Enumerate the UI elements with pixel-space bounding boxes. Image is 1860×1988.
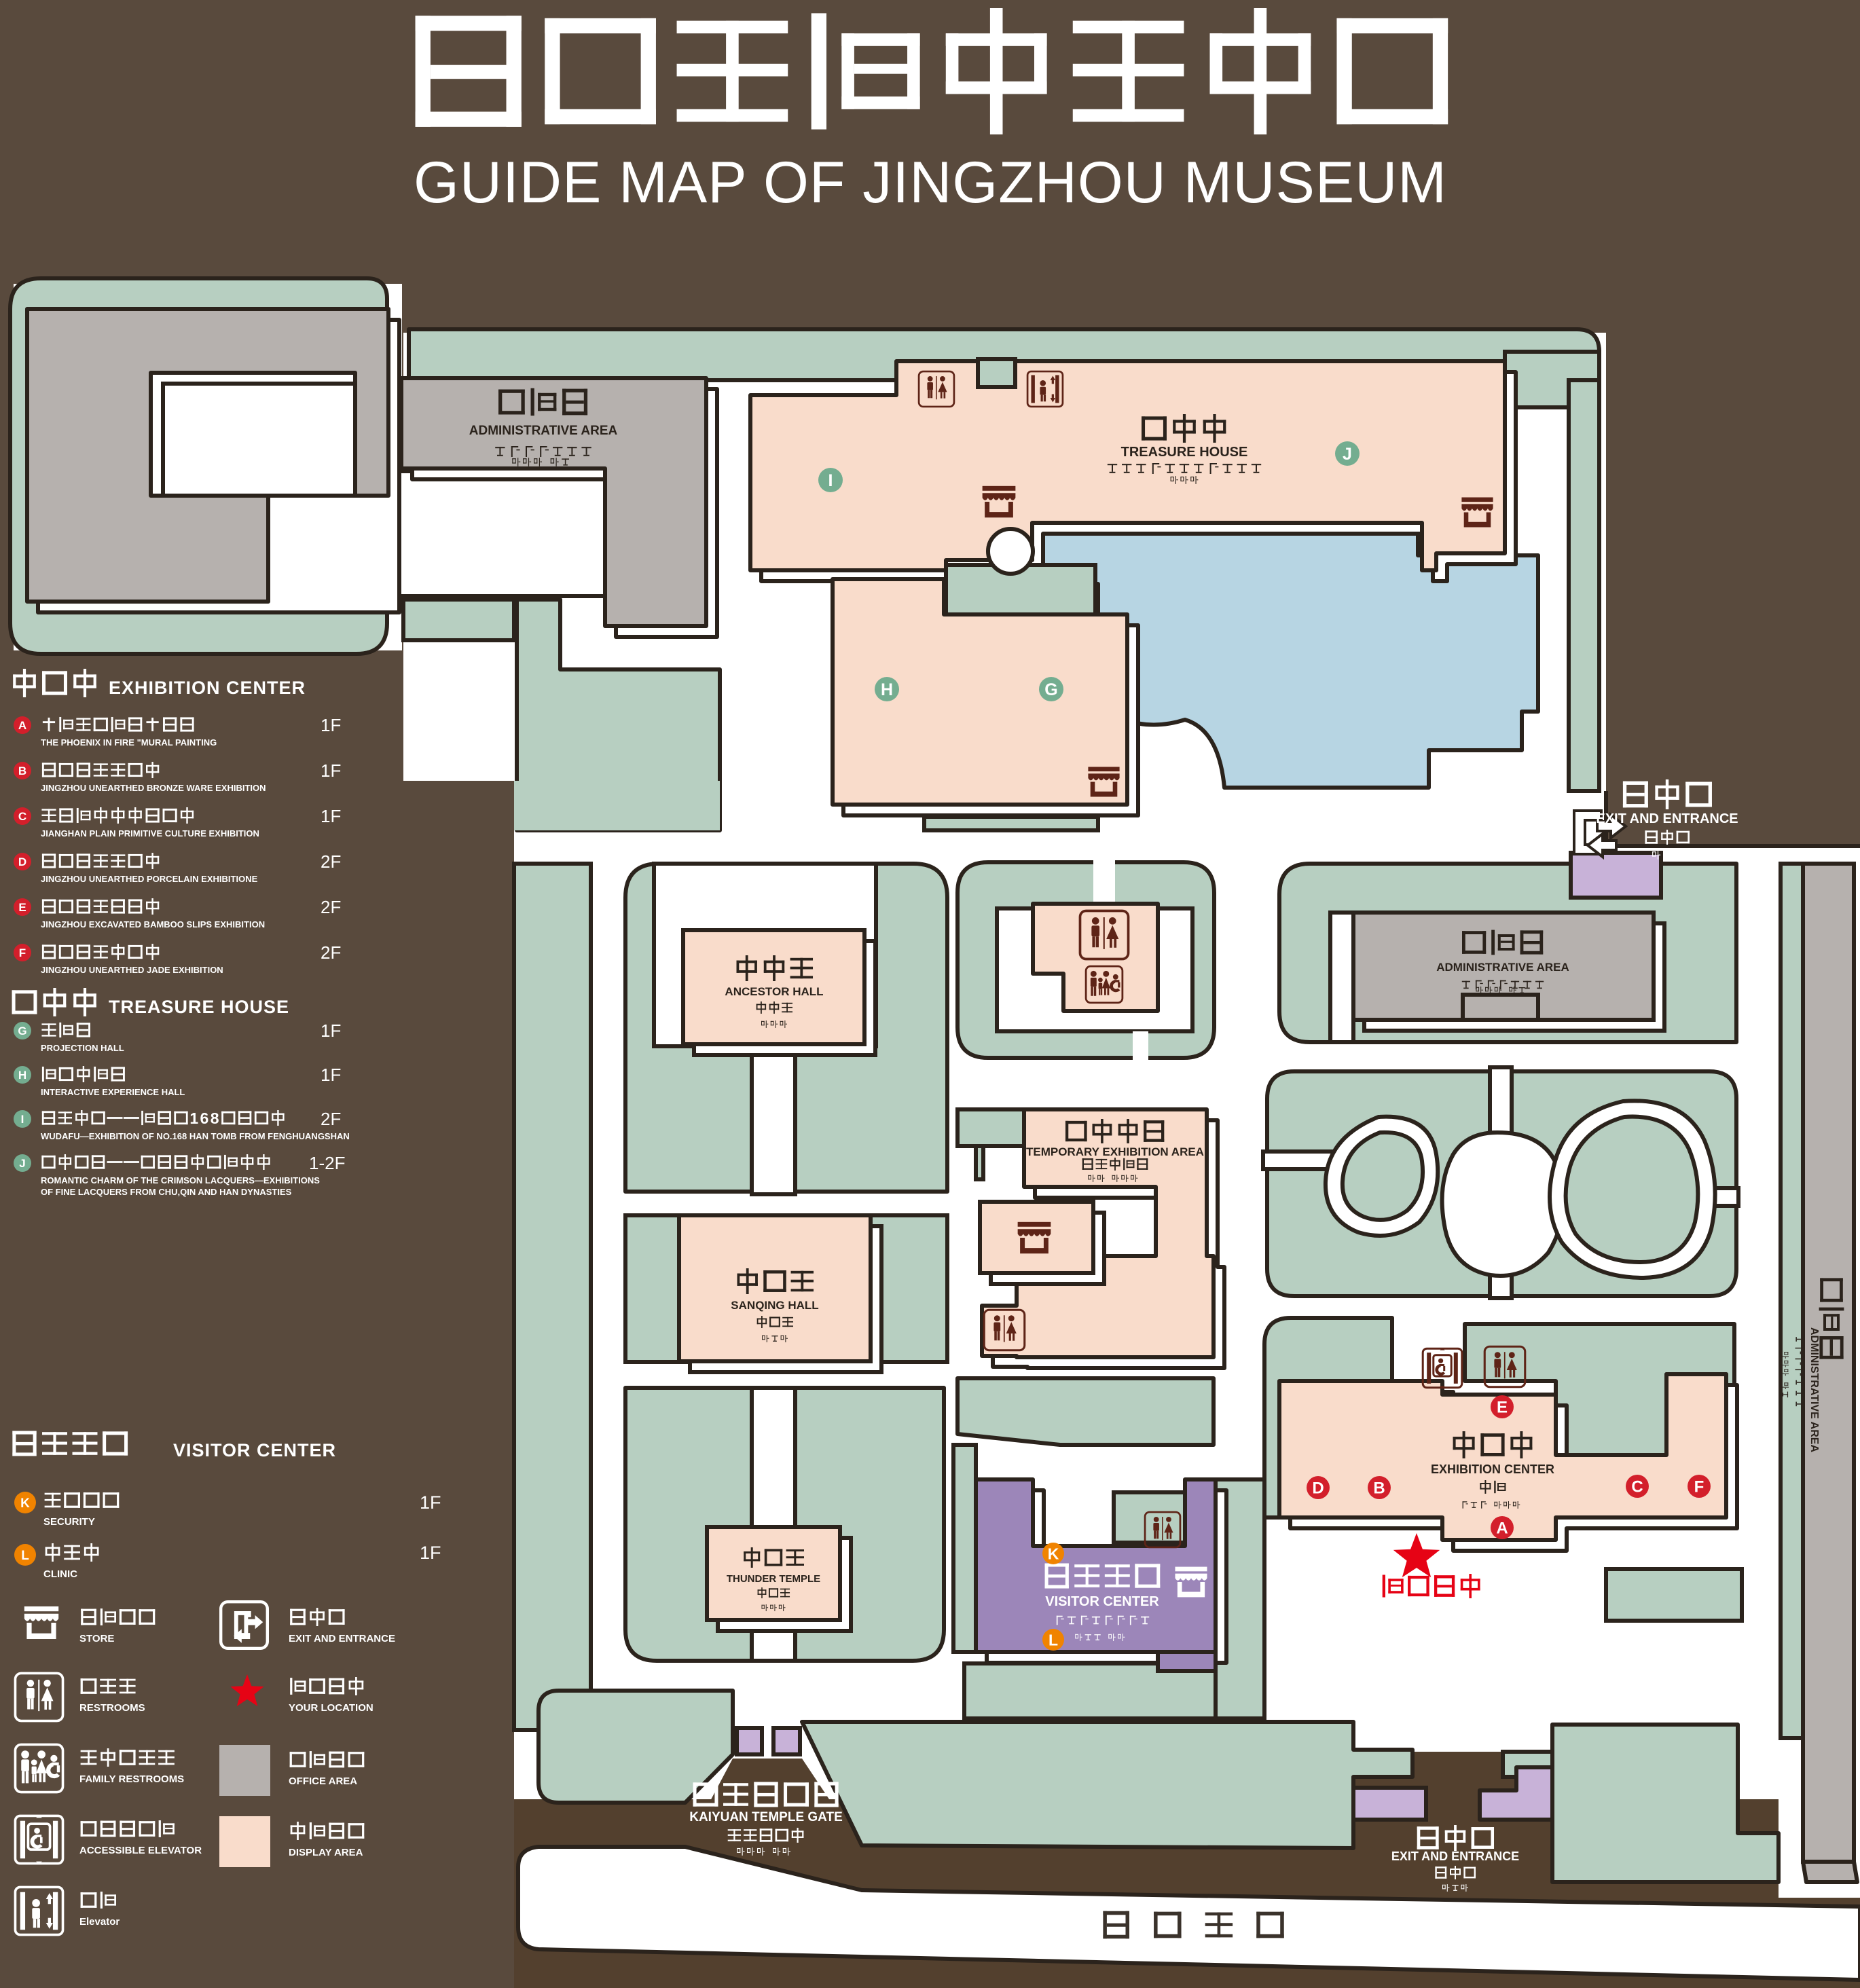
svg-text:TREASURE HOUSE: TREASURE HOUSE [1121, 445, 1248, 460]
svg-text:L: L [1048, 1631, 1058, 1649]
svg-text:DISPLAY AREA: DISPLAY AREA [289, 1847, 363, 1858]
svg-text:F: F [19, 946, 26, 959]
svg-text:B: B [18, 765, 26, 777]
svg-text:1F: 1F [420, 1492, 441, 1513]
svg-text:1-2F: 1-2F [309, 1153, 345, 1173]
svg-text:STORE: STORE [79, 1633, 114, 1644]
svg-text:E: E [18, 901, 26, 914]
svg-text:OFFICE AREA: OFFICE AREA [289, 1775, 357, 1787]
svg-text:ADMINISTRATIVE AREA: ADMINISTRATIVE AREA [469, 424, 618, 438]
svg-text:TEMPORARY EXHIBITION AREA: TEMPORARY EXHIBITION AREA [1026, 1145, 1204, 1158]
svg-text:E: E [1497, 1399, 1508, 1417]
svg-text:2F: 2F [321, 897, 341, 917]
svg-text:C: C [18, 810, 26, 823]
svg-text:INTERACTIVE EXPERIENCE HALL: INTERACTIVE EXPERIENCE HALL [41, 1087, 185, 1097]
svg-text:JIANGHAN PLAIN PRIMITIVE CULTU: JIANGHAN PLAIN PRIMITIVE CULTURE EXHIBIT… [41, 828, 259, 839]
svg-text:G: G [1044, 680, 1057, 699]
svg-text:CLINIC: CLINIC [43, 1568, 77, 1580]
svg-text:A: A [1496, 1520, 1508, 1538]
svg-text:A: A [18, 719, 26, 732]
svg-text:JINGZHOU UNEARTHED BRONZE WARE: JINGZHOU UNEARTHED BRONZE WARE EXHIBITIO… [41, 783, 266, 793]
svg-text:PROJECTION HALL: PROJECTION HALL [41, 1043, 124, 1053]
svg-text:1: 1 [189, 1109, 198, 1127]
svg-text:THUNDER TEMPLE: THUNDER TEMPLE [727, 1573, 820, 1585]
svg-text:8: 8 [211, 1109, 219, 1127]
svg-text:G: G [18, 1025, 26, 1037]
svg-text:VISITOR CENTER: VISITOR CENTER [1045, 1594, 1159, 1609]
svg-text:JINGZHOU UNEARTHED JADE EXHIBI: JINGZHOU UNEARTHED JADE EXHIBITION [41, 965, 223, 975]
svg-text:J: J [1343, 445, 1352, 464]
svg-text:I: I [828, 471, 833, 490]
svg-text:ACCESSIBLE ELEVATOR: ACCESSIBLE ELEVATOR [79, 1845, 202, 1856]
svg-text:1F: 1F [321, 1020, 341, 1041]
svg-text:2F: 2F [321, 1109, 341, 1129]
svg-text:WUDAFU—EXHIBITION OF NO.168 HA: WUDAFU—EXHIBITION OF NO.168 HAN TOMB FRO… [41, 1131, 350, 1141]
svg-text:H: H [18, 1069, 26, 1082]
svg-text:C: C [1631, 1478, 1643, 1496]
svg-text:JINGZHOU EXCAVATED BAMBOO SLIP: JINGZHOU EXCAVATED BAMBOO SLIPS EXHIBITI… [41, 919, 265, 929]
svg-text:F: F [1694, 1478, 1704, 1496]
svg-text:GUIDE MAP OF JINGZHOU MUSEUM: GUIDE MAP OF JINGZHOU MUSEUM [414, 150, 1447, 215]
svg-text:SECURITY: SECURITY [43, 1516, 95, 1528]
svg-text:ANCESTOR HALL: ANCESTOR HALL [725, 985, 823, 998]
svg-text:6: 6 [200, 1109, 209, 1127]
svg-text:H: H [881, 680, 893, 699]
svg-text:D: D [18, 855, 26, 868]
svg-text:1F: 1F [321, 1065, 341, 1085]
svg-text:KAIYUAN TEMPLE GATE: KAIYUAN TEMPLE GATE [689, 1810, 843, 1824]
svg-text:K: K [1048, 1545, 1059, 1562]
svg-text:D: D [1312, 1479, 1324, 1498]
svg-text:L: L [21, 1549, 29, 1563]
svg-text:1F: 1F [321, 760, 341, 781]
svg-text:FAMILY RESTROOMS: FAMILY RESTROOMS [79, 1773, 184, 1785]
svg-text:EXHIBITION CENTER: EXHIBITION CENTER [1431, 1462, 1554, 1476]
svg-text:J: J [19, 1157, 25, 1170]
svg-text:TREASURE HOUSE: TREASURE HOUSE [109, 997, 289, 1017]
svg-text:EXIT AND ENTRANCE: EXIT AND ENTRANCE [1596, 811, 1738, 826]
svg-text:2F: 2F [321, 942, 341, 963]
svg-text:K: K [20, 1496, 30, 1511]
svg-text:EXHIBITION CENTER: EXHIBITION CENTER [109, 678, 306, 698]
svg-text:ADMINISTRATIVE AREA: ADMINISTRATIVE AREA [1808, 1327, 1820, 1452]
svg-text:THE PHOENIX IN FIRE "MURAL PAI: THE PHOENIX IN FIRE "MURAL PAINTING [41, 737, 217, 748]
svg-text:B: B [1373, 1479, 1385, 1498]
svg-text:1F: 1F [321, 806, 341, 826]
svg-text:1F: 1F [321, 715, 341, 735]
svg-text:JINGZHOU UNEARTHED PORCELAIN E: JINGZHOU UNEARTHED PORCELAIN EXHIBITIONE [41, 874, 258, 884]
svg-text:1F: 1F [420, 1543, 441, 1563]
svg-text:I: I [21, 1113, 24, 1126]
svg-text:VISITOR CENTER: VISITOR CENTER [173, 1440, 336, 1460]
svg-text:SANQING HALL: SANQING HALL [731, 1299, 818, 1312]
svg-text:YOUR LOCATION: YOUR LOCATION [289, 1702, 373, 1714]
svg-text:ROMANTIC CHARM OF THE CRIMSON: ROMANTIC CHARM OF THE CRIMSON LACQUERS—E… [41, 1175, 320, 1185]
svg-text:EXIT AND ENTRANCE: EXIT AND ENTRANCE [289, 1633, 395, 1644]
svg-text:RESTROOMS: RESTROOMS [79, 1702, 145, 1714]
svg-text:Elevator: Elevator [79, 1916, 120, 1928]
svg-text:2F: 2F [321, 851, 341, 872]
svg-text:ADMINISTRATIVE AREA: ADMINISTRATIVE AREA [1436, 961, 1569, 974]
svg-text:EXIT AND ENTRANCE: EXIT AND ENTRANCE [1391, 1849, 1519, 1863]
svg-text:OF FINE LACQUERS FROM CHU,QIN: OF FINE LACQUERS FROM CHU,QIN AND HAN DY… [41, 1187, 292, 1197]
